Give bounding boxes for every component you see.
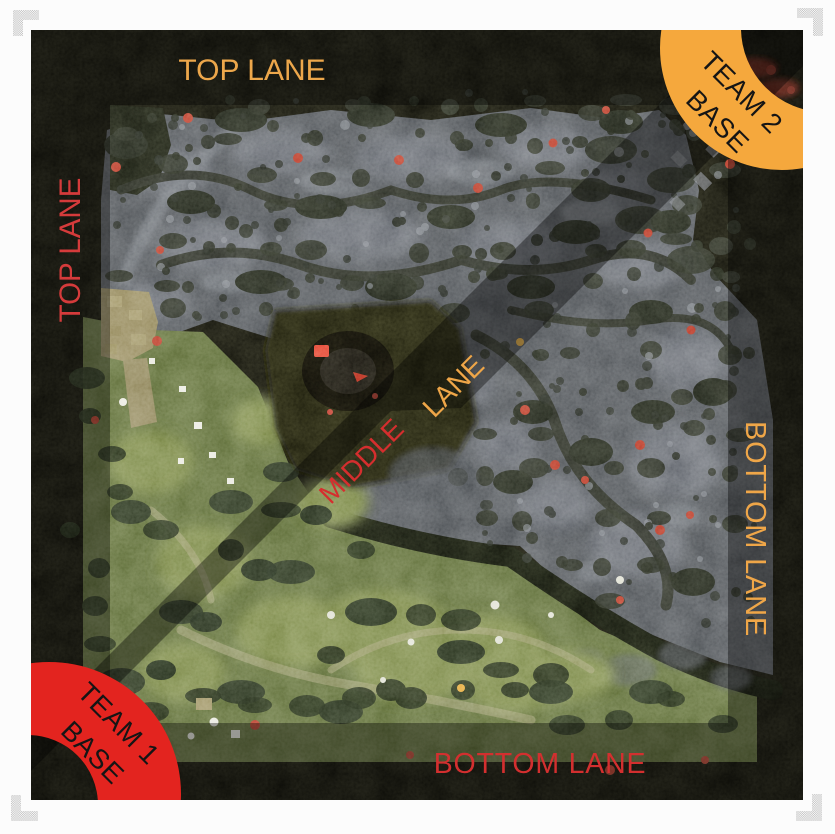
svg-text:BOTTOM LANE: BOTTOM LANE bbox=[434, 748, 647, 780]
svg-text:TOP LANE: TOP LANE bbox=[54, 178, 87, 323]
svg-text:BOTTOM LANE: BOTTOM LANE bbox=[739, 421, 771, 637]
svg-text:TOP LANE: TOP LANE bbox=[178, 54, 325, 87]
